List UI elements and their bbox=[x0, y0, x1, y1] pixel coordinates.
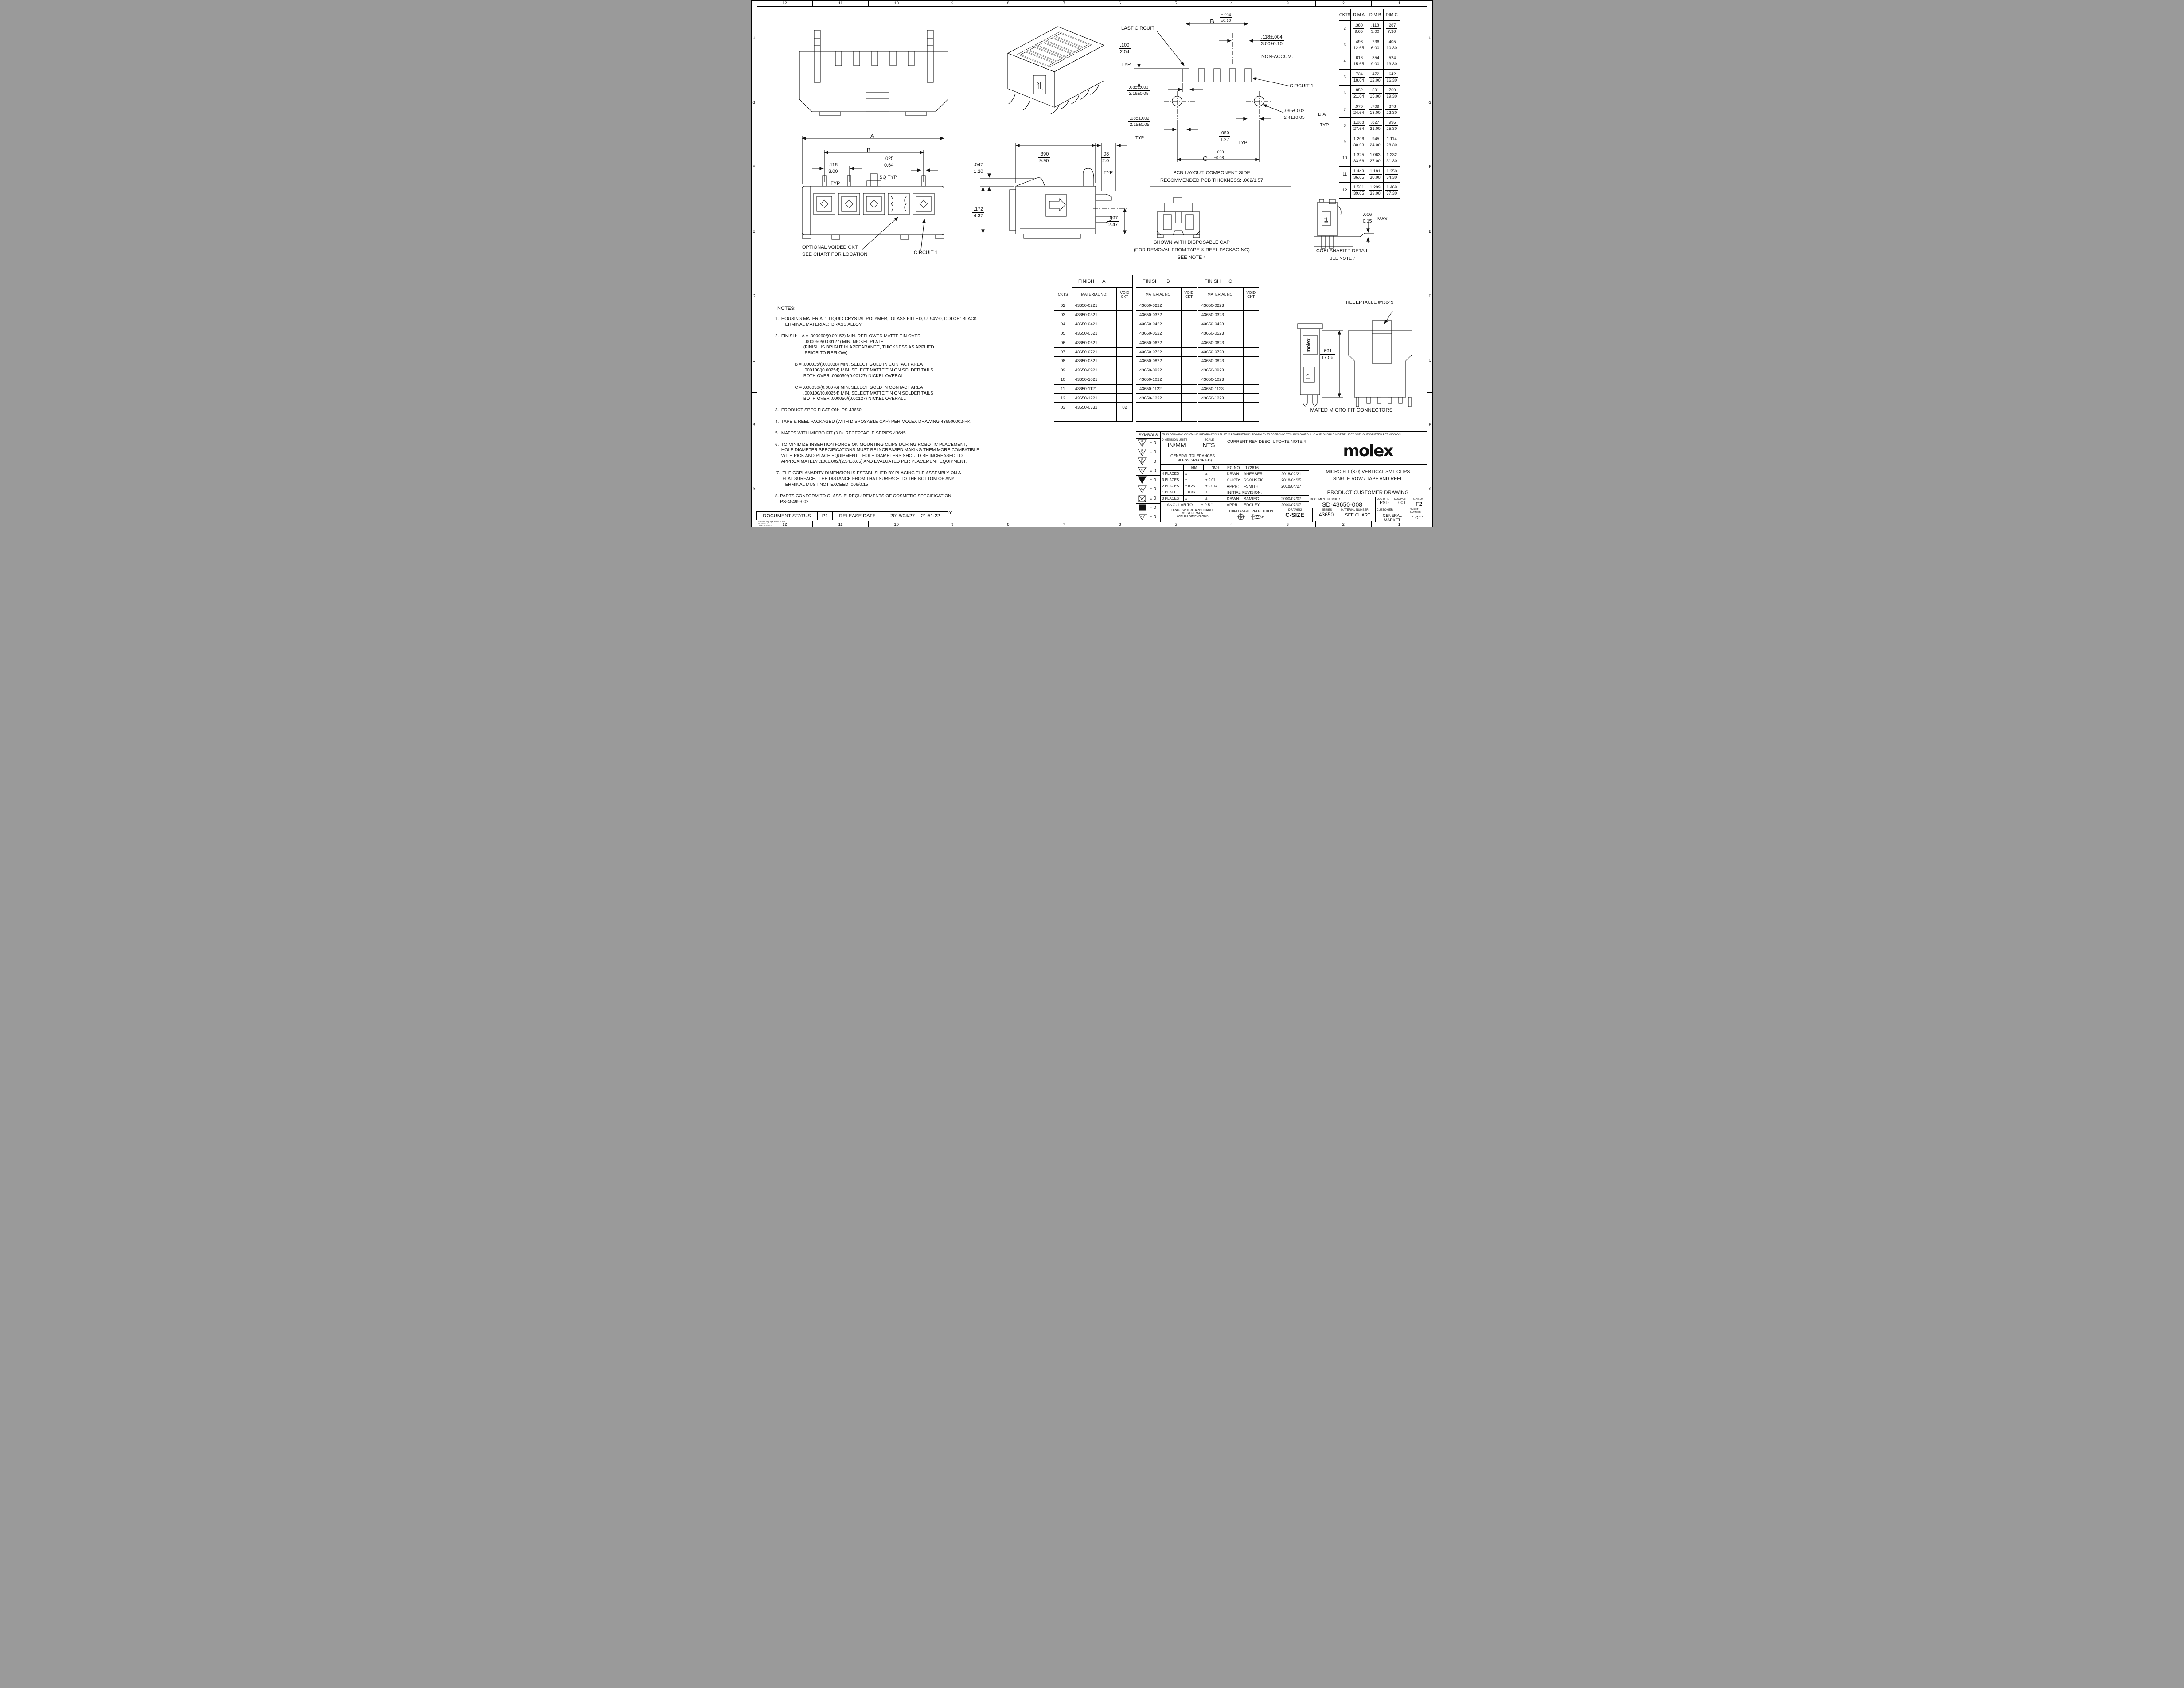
note-line bbox=[775, 356, 1061, 362]
drawing-size-cell: DRAWING C-SIZE bbox=[1277, 508, 1313, 522]
finish-a-row: 08 43650-0821 bbox=[1054, 357, 1132, 366]
finish-c-row bbox=[1198, 403, 1259, 412]
finish-table-c: FINISHC MATERIAL NO: VOID CKT 43650-0223… bbox=[1198, 275, 1259, 422]
zone-number-cell: 11 bbox=[813, 521, 869, 527]
tolerance-row: 4 PLACES ± ± bbox=[1161, 471, 1225, 477]
finish-b-row: 43650-0622 bbox=[1136, 338, 1197, 348]
zone-number-cell: 7 bbox=[1036, 521, 1092, 527]
finish-c-row: 43650-1123 bbox=[1198, 385, 1259, 394]
symbols-header: SYMBOLS bbox=[1136, 432, 1161, 439]
cap-view-drawing bbox=[1152, 197, 1205, 241]
third-angle-projection-icon bbox=[1236, 513, 1266, 521]
zone-letter-cell: E bbox=[751, 199, 757, 264]
finish-a-row: 07 43650-0721 bbox=[1054, 348, 1132, 357]
finish-c-row: 43650-0523 bbox=[1198, 329, 1259, 339]
finish-c-row: 43650-0223 bbox=[1198, 301, 1259, 311]
format-note: FORMAT: Eng-loga-master-tb-prod-C REVISI… bbox=[758, 521, 787, 527]
pcb-caption-2: RECOMMENDED PCB THICKNESS: .062/1.57 bbox=[1136, 178, 1287, 183]
finish-a-row: 02 43650-0221 bbox=[1054, 301, 1132, 311]
finish-b-row: 43650-0322 bbox=[1136, 311, 1197, 320]
dim-table-row: 4 .61615.65 .3549.00 .52413.30 bbox=[1339, 53, 1400, 70]
pcb-pitch-suffix: NON-ACCUM. bbox=[1261, 54, 1293, 59]
zone-number-cell: 5 bbox=[1148, 0, 1204, 6]
note-line bbox=[775, 328, 1061, 334]
coplanarity-drawing: 1 bbox=[1311, 199, 1427, 249]
note-line: FLAT SURFACE. THE DISTANCE FROM THAT SUR… bbox=[775, 477, 1061, 482]
filled-square-icon bbox=[1137, 504, 1147, 512]
dim-table-row: 7 .97024.64 .70918.00 .87822.30 bbox=[1339, 102, 1400, 118]
front-view-drawing bbox=[790, 128, 956, 261]
finish-b-row: 43650-1122 bbox=[1136, 385, 1197, 394]
note-line: 5. MATES WITH MICRO FIT (3.0) RECEPTACLE… bbox=[775, 431, 1061, 437]
finish-symbol-fp-icon: FP bbox=[1137, 457, 1147, 465]
finish-b-row: 43650-1022 bbox=[1136, 375, 1197, 385]
finish-c-row: 43650-0923 bbox=[1198, 366, 1259, 375]
zone-number-cell: 2 bbox=[1316, 521, 1372, 527]
zone-letter-cell: C bbox=[751, 328, 757, 393]
note-line: 3. PRODUCT SPECIFICATION: PS-43650 bbox=[775, 408, 1061, 414]
svg-text:S: S bbox=[1141, 469, 1143, 472]
zone-letter-cell: H bbox=[1427, 6, 1433, 70]
note-line: (FINISH IS BRIGHT IN APPEARANCE, THICKNE… bbox=[775, 345, 1061, 351]
note-line bbox=[775, 414, 1061, 419]
front-dim-a: A bbox=[870, 133, 874, 139]
pcb-padw2-dim: .085±.0022.15±0.05 bbox=[1128, 116, 1150, 127]
finish-table-b: FINISHB MATERIAL NO: VOID CKT 43650-0222… bbox=[1136, 275, 1197, 422]
tolerance-row: 0 PLACES ± ± bbox=[1161, 496, 1225, 502]
note-line: 7. THE COPLANARITY DIMENSION IS ESTABLIS… bbox=[775, 471, 1061, 477]
finish-a-row: 05 43650-0521 bbox=[1054, 329, 1132, 339]
dim-table-row: 10 1.32533.66 1.06327.00 1.23231.30 bbox=[1339, 150, 1400, 167]
customer-cell: CUSTOMER GENERAL MARKET bbox=[1376, 508, 1409, 522]
pcb-circuit1-label: CIRCUIT 1 bbox=[1290, 83, 1314, 89]
zone-ruler-left: HGFEDCBA bbox=[751, 6, 757, 521]
last-circuit-label: LAST CIRCUIT bbox=[1121, 26, 1154, 31]
finish-symbol-fa-icon: FA bbox=[1137, 439, 1147, 447]
small-triangle-line-icon: C bbox=[1137, 513, 1147, 521]
drawing-sheet: 121110987654321 121110987654321 HGFEDCBA… bbox=[751, 0, 1433, 527]
signature-rows: DRWN:ANESSER2018/02/21 CHK'D:SSOUSEK2018… bbox=[1225, 471, 1309, 489]
symbols-column: FA =0 FC =0 FP =0 S =0 =0 C =0 bbox=[1136, 439, 1161, 522]
front-sq-suffix: SQ TYP bbox=[879, 175, 897, 180]
zone-letter-cell: D bbox=[751, 264, 757, 328]
doc-type-cell: DOC TYPE PSD bbox=[1376, 497, 1393, 508]
release-datetime: 2018/04/2721:51:22 bbox=[882, 512, 948, 520]
zone-letter-cell: E bbox=[1427, 199, 1433, 264]
side-tab-dim: .082.0 bbox=[1101, 152, 1110, 164]
signature-row: APPR:FSMITH2018/04/27 bbox=[1225, 483, 1309, 489]
finish-b-row: 43650-0222 bbox=[1136, 301, 1197, 311]
finish-b-row: 43650-0722 bbox=[1136, 348, 1197, 357]
finish-c-row: 43650-1023 bbox=[1198, 375, 1259, 385]
finish-b-row: 43650-0522 bbox=[1136, 329, 1197, 339]
zone-number-cell: 1 bbox=[1372, 0, 1427, 6]
document-status-bar: DOCUMENT STATUS P1 RELEASE DATE 2018/04/… bbox=[756, 511, 948, 520]
dimension-units-cell: DIMENSION UNITS IN/MM bbox=[1161, 438, 1193, 452]
zone-number-cell: 3 bbox=[1260, 0, 1316, 6]
finish-a-row: 10 43650-1021 bbox=[1054, 375, 1132, 385]
finish-b-row: 43650-1222 bbox=[1136, 394, 1197, 403]
side-w-dim: .3909.90 bbox=[1038, 152, 1050, 164]
coplanarity-sub: SEE NOTE 7 bbox=[1300, 256, 1384, 261]
note-line: BOTH OVER .000050/(0.00127) NICKEL OVERA… bbox=[775, 396, 1061, 402]
angular-tol-cell: ANGULAR TOL ± 0.5 ° bbox=[1161, 502, 1225, 508]
notes-list: 1. HOUSING MATERIAL: LIQUID CRYSTAL POLY… bbox=[775, 316, 1061, 522]
dim-table-row: 9 1.20630.63 .94524.00 1.11428.30 bbox=[1339, 134, 1400, 151]
scale-cell: SCALE NTS bbox=[1193, 438, 1225, 452]
side-h3-dim: .0972.47 bbox=[1107, 215, 1119, 227]
note-line: BOTH OVER .000050/(0.00127) NICKEL OVERA… bbox=[775, 374, 1061, 379]
finish-c-row: 43650-1223 bbox=[1198, 394, 1259, 403]
zone-ruler-top: 121110987654321 bbox=[757, 0, 1427, 6]
note-line: APPROXIMATELY .100±.002/(2.54±0.05) AND … bbox=[775, 459, 1061, 465]
note-line bbox=[775, 425, 1061, 431]
zone-number-cell: 1 bbox=[1372, 521, 1427, 527]
zone-number-cell: 5 bbox=[1148, 521, 1204, 527]
zone-number-cell: 7 bbox=[1036, 0, 1092, 6]
zone-number-cell: 6 bbox=[1092, 521, 1148, 527]
pcb-padw-dim: .085±.0022.16±0.05 bbox=[1127, 85, 1150, 96]
zone-number-cell: 4 bbox=[1204, 521, 1260, 527]
svg-text:C: C bbox=[1141, 516, 1143, 518]
svg-text:molex: molex bbox=[1306, 338, 1311, 352]
zone-number-cell: 8 bbox=[980, 0, 1036, 6]
zone-letter-cell: F bbox=[751, 135, 757, 199]
drawing-title-cell: MICRO FIT (3.0) VERTICAL SMT CLIPS SINGL… bbox=[1309, 465, 1427, 489]
coplanarity-max: MAX bbox=[1377, 216, 1388, 222]
note-line: WITH PICK AND PLACE EQUIPMENT. HOLE DIAM… bbox=[775, 453, 1061, 459]
pcb-p100-suffix: TYP. bbox=[1121, 62, 1131, 67]
zone-number-cell: 11 bbox=[813, 0, 869, 6]
proprietary-notice: THIS DRAWING CONTAINS INFORMATION THAT I… bbox=[1161, 432, 1427, 438]
dim-table-row: 6 .85221.64 .59115.00 .76019.30 bbox=[1339, 86, 1400, 102]
note-line bbox=[775, 379, 1061, 385]
signature-row: DRWN:ANESSER2018/02/21 bbox=[1225, 471, 1309, 477]
pcb-caption-1: PCB LAYOUT: COMPONENT SIDE bbox=[1136, 170, 1287, 176]
zone-letter-cell: F bbox=[1427, 135, 1433, 199]
finish-b-row bbox=[1136, 412, 1197, 422]
revision-cell: REVISION F2 bbox=[1411, 497, 1427, 508]
svg-text:1: 1 bbox=[1324, 216, 1328, 224]
zone-number-cell: 10 bbox=[869, 0, 924, 6]
svg-text:1: 1 bbox=[1036, 79, 1042, 93]
dim-table: CKTS DIM A DIM B DIM C 2 .3809.65 .1183.… bbox=[1339, 9, 1400, 199]
sheet-number-cell: SHEET NUMBER 1 OF 1 bbox=[1409, 508, 1427, 522]
front-pitch-dim: .1183.00 bbox=[827, 162, 839, 174]
general-tolerances-cell: GENERAL TOLERANCES (UNLESS SPECIFIED) bbox=[1161, 452, 1225, 465]
note-line: 8. PARTS CONFORM TO CLASS 'B' REQUIREMEN… bbox=[775, 494, 1061, 500]
finish-a-row: 12 43650-1221 bbox=[1054, 394, 1132, 403]
current-rev-cell: CURRENT REV DESC: UPDATE NOTE 4 bbox=[1225, 438, 1309, 465]
dim-table-row: 3 .49812.65 .2366.00 .40510.30 bbox=[1339, 37, 1400, 54]
finish-symbol-fc-icon: FC bbox=[1137, 449, 1147, 457]
crossed-box-icon bbox=[1137, 495, 1147, 503]
zone-letter-cell: B bbox=[751, 393, 757, 457]
note-line: TERMINAL MUST NOT EXCEED .006/0.15 bbox=[775, 482, 1061, 488]
front-sq-dim: .0250.64 bbox=[883, 156, 895, 168]
coplanarity-dim: .0060.15 bbox=[1361, 212, 1373, 224]
zone-number-cell: 8 bbox=[980, 521, 1036, 527]
finish-b-title: FINISHB bbox=[1136, 275, 1197, 288]
col-ckts: CKTS bbox=[1339, 9, 1351, 21]
zone-number-cell: 9 bbox=[924, 521, 980, 527]
notes-heading: NOTES: bbox=[777, 306, 796, 311]
material-number-cell: MATERIAL NUMBER SEE CHART bbox=[1340, 508, 1376, 522]
side-tab-suffix: TYP bbox=[1104, 170, 1113, 176]
zone-ruler-right: HGFEDCBA bbox=[1427, 6, 1433, 521]
finish-a-row: 04 43650-0421 bbox=[1054, 320, 1132, 329]
front-voided-label-2: SEE CHART FOR LOCATION bbox=[802, 252, 867, 257]
zone-letter-cell: G bbox=[751, 70, 757, 135]
front-pitch-suffix: TYP bbox=[831, 181, 840, 186]
initial-signature-row: APPR:EDGLEY2000/07/07 bbox=[1225, 502, 1309, 508]
note-line: .000100/(0.00254) MIN. SELECT MATTE TIN … bbox=[775, 368, 1061, 374]
zone-ruler-bottom: 121110987654321 bbox=[757, 521, 1427, 527]
dim-table-row: 8 1.08827.64 .82721.00 .99625.30 bbox=[1339, 118, 1400, 134]
note-line: 1. HOUSING MATERIAL: LIQUID CRYSTAL POLY… bbox=[775, 316, 1061, 322]
note-line bbox=[775, 437, 1061, 442]
svg-text:1: 1 bbox=[1306, 373, 1310, 380]
mated-height-dim: .69117.56 bbox=[1320, 348, 1335, 360]
finish-symbol-c-icon: C bbox=[1137, 485, 1147, 493]
mated-caption: MATED MICRO FIT CONNECTORS bbox=[1302, 408, 1401, 413]
side-view-drawing bbox=[967, 128, 1131, 261]
side-h1-dim: .0471.20 bbox=[972, 162, 984, 174]
tolerance-row: 2 PLACES ± 0.25 ± 0.014 bbox=[1161, 483, 1225, 489]
note-line bbox=[775, 402, 1061, 408]
note-line: B = .000015/(0.00038) MIN. SELECT GOLD I… bbox=[775, 362, 1061, 368]
cap-caption-3: SEE NOTE 4 bbox=[1125, 255, 1258, 260]
pcb-dim-c: C bbox=[1203, 155, 1208, 163]
cap-caption-1: SHOWN WITH DISPOSABLE CAP bbox=[1125, 240, 1258, 245]
title-block: SYMBOLS FA =0 FC =0 FP =0 S =0 =0 bbox=[1136, 431, 1427, 521]
molex-logo: molex bbox=[1309, 438, 1427, 465]
zone-number-cell: 3 bbox=[1260, 521, 1316, 527]
note-line: .000100/(0.00254) MIN. SELECT MATTE TIN … bbox=[775, 391, 1061, 397]
finish-c-row: 43650-0723 bbox=[1198, 348, 1259, 357]
finish-c-row bbox=[1198, 412, 1259, 422]
note-line: PRIOR TO REFLOW) bbox=[775, 351, 1061, 356]
pcb-dim-b-tol: ±.004±0.10 bbox=[1220, 12, 1232, 23]
coplanarity-title: COPLANARITY DETAIL bbox=[1300, 248, 1384, 254]
zone-number-cell: 6 bbox=[1092, 0, 1148, 6]
pcb-dim-c-tol: ±.003±0.08 bbox=[1213, 150, 1225, 160]
side-h2-dim: .1724.37 bbox=[972, 207, 984, 219]
pcb-p100-dim: .1002.54 bbox=[1119, 43, 1131, 55]
zone-number-cell: 10 bbox=[869, 521, 924, 527]
tolerance-row: 3 PLACES ± ± 0.01 bbox=[1161, 477, 1225, 483]
front-dim-b: B bbox=[867, 147, 870, 153]
note-line bbox=[775, 488, 1061, 494]
dim-table-row: 5 .73418.64 .47212.00 .64216.30 bbox=[1339, 70, 1400, 86]
finish-table-a: FINISHA CKTS MATERIAL NO: VOID CKT 02 43… bbox=[1054, 275, 1133, 422]
cap-caption-2: (FOR REMOVAL FROM TAPE & REEL PACKAGING) bbox=[1125, 247, 1258, 253]
finish-a-row: 03 43650-0332 02 bbox=[1054, 403, 1132, 412]
isometric-view-drawing: 1 bbox=[988, 10, 1114, 118]
finish-a-row: 06 43650-0621 bbox=[1054, 338, 1132, 348]
finish-c-row: 43650-0323 bbox=[1198, 311, 1259, 320]
pcb-layout-drawing bbox=[1114, 13, 1338, 191]
zone-number-cell: 9 bbox=[924, 0, 980, 6]
finish-symbol-s-icon: S bbox=[1137, 467, 1147, 475]
pcb-pitch-dim: .118±.0043.00±0.10 bbox=[1260, 35, 1284, 47]
pcb-dim-b: B bbox=[1210, 18, 1214, 25]
svg-text:A: A bbox=[1141, 443, 1143, 446]
finish-a-row bbox=[1054, 412, 1132, 422]
note-line bbox=[775, 505, 1061, 511]
note-line: HOLE DIAMETER SPECIFICATIONS MUST BE INC… bbox=[775, 448, 1061, 453]
finish-a-row: 11 43650-1121 bbox=[1054, 385, 1132, 394]
note-line: 2. FINISH: A = .000060/(0.00152) MIN. RE… bbox=[775, 334, 1061, 340]
note-line: TERMINAL MATERIAL: BRASS ALLOY bbox=[775, 322, 1061, 328]
doc-part-cell: DOC PART 001 bbox=[1393, 497, 1411, 508]
finish-a-row: 09 43650-0921 bbox=[1054, 366, 1132, 375]
mated-connectors-drawing: molex 1 bbox=[1291, 310, 1429, 411]
zone-number-cell: 4 bbox=[1204, 0, 1260, 6]
finish-c-row: 43650-0623 bbox=[1198, 338, 1259, 348]
col-dim-b: DIM B bbox=[1367, 9, 1383, 21]
finish-a-row: 03 43650-0321 bbox=[1054, 311, 1132, 320]
note-line: 6. TO MINIMIZE INSERTION FORCE ON MOUNTI… bbox=[775, 442, 1061, 448]
initial-signature-row: DRWN:SAMIEC2000/07/07 bbox=[1225, 496, 1309, 502]
zone-letter-cell: A bbox=[1427, 457, 1433, 521]
finish-b-row: 43650-0822 bbox=[1136, 357, 1197, 366]
note-line: 4. TAPE & REEL PACKAGED (WITH DISPOSABLE… bbox=[775, 419, 1061, 425]
mm-inch-header: MM INCH bbox=[1161, 465, 1225, 471]
dim-table-row: 11 1.44336.65 1.18130.00 1.35034.30 bbox=[1339, 167, 1400, 183]
note-line bbox=[775, 465, 1061, 471]
svg-text:P: P bbox=[1141, 461, 1143, 464]
pcb-hole-dim: .095±.0022.41±0.05 bbox=[1283, 108, 1306, 120]
dim-table-row: 12 1.56139.65 1.29933.00 1.46937.30 bbox=[1339, 183, 1400, 199]
finish-b-row: 43650-0422 bbox=[1136, 320, 1197, 329]
zone-letter-cell: G bbox=[1427, 70, 1433, 135]
note-line: .000050/(0.00127) MIN. NICKEL PLATE bbox=[775, 340, 1061, 345]
pcb-gap-suffix: TYP bbox=[1238, 140, 1247, 145]
finish-a-title: FINISHA bbox=[1072, 275, 1133, 288]
zone-number-cell: 12 bbox=[757, 0, 813, 6]
initial-revision-cell: INITIAL REVISION: bbox=[1225, 489, 1309, 496]
receptacle-label: RECEPTACLE #43645 bbox=[1346, 300, 1393, 305]
pcb-padw2-suffix: TYP. bbox=[1135, 136, 1145, 141]
finish-b-row bbox=[1136, 403, 1197, 412]
status-label: DOCUMENT STATUS bbox=[757, 512, 818, 520]
finish-c-row: 43650-0823 bbox=[1198, 357, 1259, 366]
pcb-hole-suffix1: DIA bbox=[1318, 112, 1326, 117]
draft-note-cell: DRAFT WHERE APPLICABLE MUST REMAIN WITHI… bbox=[1161, 508, 1225, 522]
dim-table-header: CKTS DIM A DIM B DIM C bbox=[1339, 9, 1400, 21]
doc-title-cell: PRODUCT CUSTOMER DRAWING bbox=[1309, 489, 1427, 497]
pcb-hole-suffix2: TYP bbox=[1320, 122, 1329, 128]
finish-c-row: 43650-0423 bbox=[1198, 320, 1259, 329]
third-angle-cell: THIRD ANGLE PROJECTION bbox=[1225, 508, 1277, 522]
tolerance-rows: 4 PLACES ± ± 3 PLACES ± ± 0.01 2 PLACES … bbox=[1161, 471, 1225, 502]
note-line: PS-45499-002 bbox=[775, 500, 1061, 505]
series-cell: SERIES 43650 bbox=[1313, 508, 1340, 522]
col-dim-c: DIM C bbox=[1384, 9, 1400, 21]
svg-text:C: C bbox=[1141, 453, 1143, 455]
zone-letter-cell: H bbox=[751, 6, 757, 70]
front-voided-label-1: OPTIONAL VOIDED CKT bbox=[802, 245, 858, 250]
finish-c-title: FINISHC bbox=[1198, 275, 1259, 288]
release-label: RELEASE DATE bbox=[833, 512, 882, 520]
finish-b-row: 43650-0922 bbox=[1136, 366, 1197, 375]
svg-text:C: C bbox=[1141, 488, 1143, 491]
front-circuit1-label: CIRCUIT 1 bbox=[914, 250, 938, 255]
dim-table-row: 2 .3809.65 .1183.00 .2877.30 bbox=[1339, 21, 1400, 37]
note-line: C = .000030/(0.00076) MIN. SELECT GOLD I… bbox=[775, 385, 1061, 391]
document-number-cell: DOCUMENT NUMBER SD-43650-008 bbox=[1309, 497, 1376, 508]
zone-number-cell: 2 bbox=[1316, 0, 1372, 6]
pcb-gap-dim: .0501.27 bbox=[1219, 130, 1230, 142]
top-view-drawing bbox=[793, 12, 955, 121]
tolerance-row: 1 PLACE ± 0.36 ± bbox=[1161, 489, 1225, 496]
signature-row: CHK'D:SSOUSEK2018/04/25 bbox=[1225, 477, 1309, 483]
status-value: P1 bbox=[818, 512, 833, 520]
filled-triangle-icon bbox=[1137, 476, 1147, 484]
initial-rows: DRWN:SAMIEC2000/07/07 APPR:EDGLEY2000/07… bbox=[1225, 496, 1309, 508]
ec-no-cell: EC NO:172616 bbox=[1225, 465, 1309, 471]
col-dim-a: DIM A bbox=[1351, 9, 1367, 21]
